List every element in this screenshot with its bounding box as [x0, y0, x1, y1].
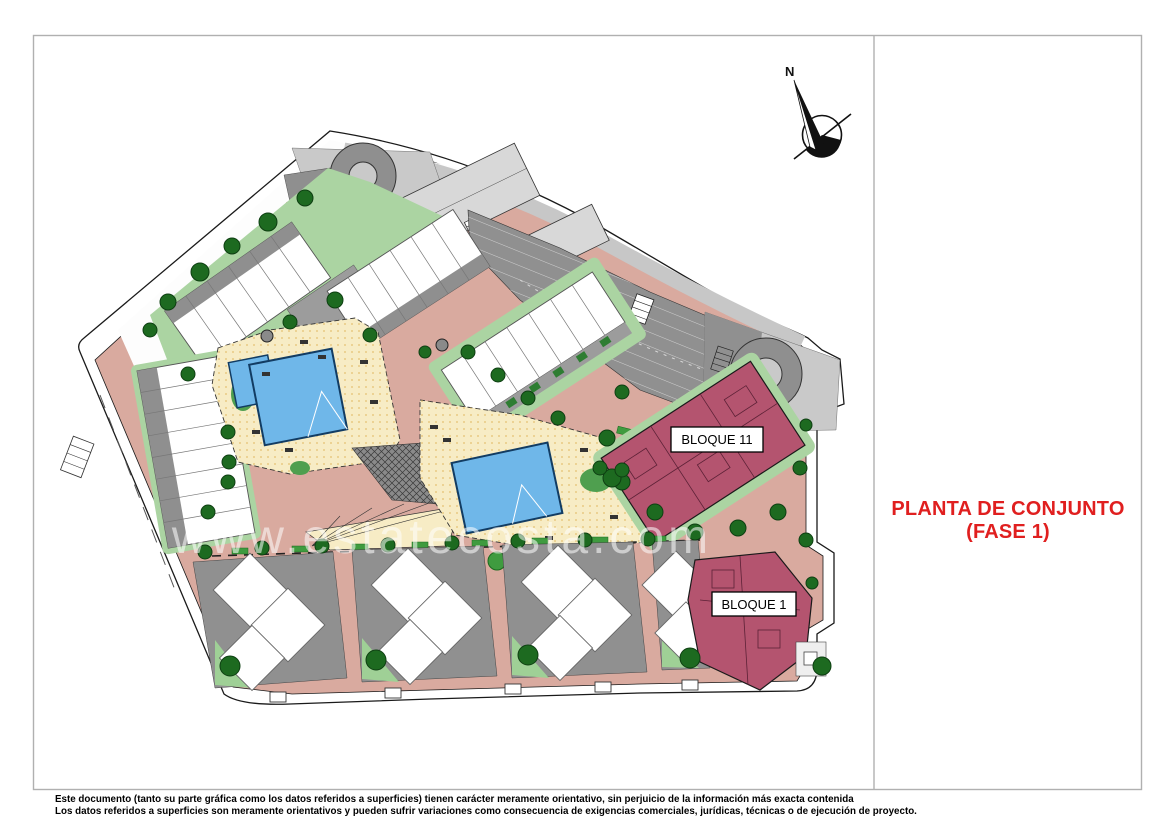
disclaimer: Este documento (tanto su parte gráfica c… [55, 794, 1135, 817]
svg-text:BLOQUE 1: BLOQUE 1 [721, 597, 786, 612]
watermark-text: www.estatecosta.com [171, 511, 712, 564]
bloque-11-label: BLOQUE 11 [671, 427, 763, 452]
plan-title: PLANTA DE CONJUNTO (FASE 1) [876, 498, 1140, 544]
site-plan-drawing: N [0, 0, 1164, 823]
svg-text:BLOQUE 11: BLOQUE 11 [681, 432, 752, 447]
disclaimer-line-1: Este documento (tanto su parte gráfica c… [55, 794, 1135, 806]
plan-title-line2: (FASE 1) [876, 521, 1140, 544]
north-arrow-icon: N [785, 64, 851, 159]
site-plan-page: N [0, 0, 1164, 823]
boundary-stair-notch [60, 436, 93, 477]
disclaimer-line-2: Los datos referidos a superficies son me… [55, 806, 1135, 818]
plan-title-line1: PLANTA DE CONJUNTO [876, 498, 1140, 521]
bloque-1-label: BLOQUE 1 [712, 592, 796, 616]
compass-n-label: N [785, 64, 794, 79]
